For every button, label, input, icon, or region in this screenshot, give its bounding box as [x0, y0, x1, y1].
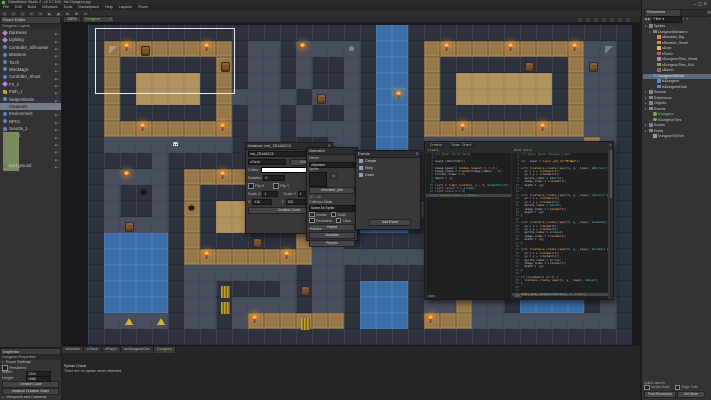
asset-label: sMonster_Big: [662, 35, 684, 39]
menu-help[interactable]: Help: [105, 5, 113, 9]
map-tile: [584, 73, 600, 89]
menu-layouts[interactable]: Layouts: [119, 5, 132, 9]
asset-icon: [653, 74, 657, 78]
object-ref-field[interactable]: oTorch: [248, 159, 286, 166]
map-tile: [136, 265, 152, 281]
map-tile: [280, 105, 296, 121]
torch-sprite: [301, 46, 304, 51]
layer-row-shadows[interactable]: Shadows◉ ▪: [0, 132, 61, 139]
map-tile: [248, 121, 264, 137]
map-tile: [216, 153, 232, 169]
map-tile: [280, 281, 296, 297]
y-field[interactable]: 320: [286, 199, 306, 206]
folder-icon: [649, 129, 653, 133]
code-pane-roomstart[interactable]: Room Start 1/// @desc Spawn dungeon prop…: [511, 148, 608, 299]
rotation-field[interactable]: 0: [263, 175, 285, 182]
map-tile: [88, 265, 104, 281]
barrel-sprite: [125, 222, 134, 232]
map-tile: [360, 25, 376, 41]
layer-list: Darkness◉ ▪Lighting◉ ▪Controller_Silhoue…: [0, 29, 61, 169]
map-tile: [152, 233, 168, 249]
map-tile: [376, 105, 392, 121]
map-tile: [584, 329, 600, 345]
folder-icon: [649, 96, 653, 100]
map-tile: [392, 297, 408, 313]
map-tile: [392, 281, 408, 297]
layer-label: Creatures: [9, 104, 27, 109]
creation-code-button[interactable]: Creation Code: [2, 381, 59, 387]
map-tile: [200, 217, 216, 233]
map-tile: [248, 57, 264, 73]
map-tile: [120, 297, 136, 313]
find-resources-button[interactable]: Find Resources: [644, 391, 676, 398]
add-event-button[interactable]: Add Event: [369, 219, 411, 226]
inst-layer-icon: [3, 112, 7, 116]
get-more-button[interactable]: Get More: [677, 391, 705, 398]
folder-icon: [649, 90, 653, 94]
map-tile: [616, 217, 632, 233]
map-tile: [280, 89, 296, 105]
map-tile: [584, 121, 600, 137]
map-tile: [616, 169, 632, 185]
map-tile: [504, 57, 520, 73]
visibility-lock-icons[interactable]: ◉ ▪: [54, 164, 59, 171]
map-tile: [440, 73, 456, 89]
map-tile: [296, 73, 312, 89]
map-tile: [408, 297, 424, 313]
map-tile: [88, 201, 104, 217]
map-tile: [408, 233, 424, 249]
map-tile: [296, 25, 312, 41]
barrel-sprite: [317, 94, 326, 104]
map-tile: [408, 265, 424, 281]
object-editor-window: oMonster Name: oMonster Sprite: ✎ sMonst…: [306, 147, 358, 241]
menu-tools[interactable]: Tools: [64, 5, 73, 9]
event-row-create[interactable]: Create: [356, 158, 420, 165]
map-tile: [168, 169, 184, 185]
editor-tab-oplayer[interactable]: oPlayer: [102, 347, 121, 353]
flip-x-checkbox[interactable]: [248, 183, 254, 189]
layer-label: Environment: [9, 111, 33, 116]
menu-marketplace[interactable]: Marketplace: [78, 5, 99, 9]
event-row-step[interactable]: Step: [356, 165, 420, 172]
code-lines-roomstart[interactable]: 1/// @desc Spawn dungeon props2 3var _la…: [512, 153, 608, 296]
map-tile: [616, 89, 632, 105]
map-tile: [408, 313, 424, 329]
menu-build[interactable]: Build: [28, 5, 36, 9]
map-tile: [360, 89, 376, 105]
map-tile: [152, 153, 168, 169]
map-tile: [280, 41, 296, 57]
map-tile: [360, 41, 376, 57]
map-tile: [488, 105, 504, 121]
map-tile: [296, 121, 312, 137]
map-tile: [488, 89, 504, 105]
map-tile: [152, 201, 168, 217]
map-tile: [520, 121, 536, 137]
map-tile: [280, 233, 296, 249]
map-tile: [168, 185, 184, 201]
map-tile: [424, 73, 440, 89]
map-tile: [616, 73, 632, 89]
menu-file[interactable]: File: [3, 5, 9, 9]
asset-icon: [653, 112, 657, 116]
map-tile: [408, 329, 424, 345]
window-controls[interactable]: –▢✕: [694, 1, 709, 6]
map-tile: [328, 297, 344, 313]
fx-layer-icon: [2, 37, 8, 43]
map-tile: [328, 329, 344, 345]
editor-tab-scrdungeongen[interactable]: scrDungeonGen: [121, 347, 154, 353]
events-window-titlebar[interactable]: Events ✕: [356, 151, 420, 158]
map-tile: [264, 249, 280, 265]
map-tile: [440, 329, 456, 345]
barrel-sprite: [253, 238, 262, 248]
map-tile: [200, 121, 216, 137]
inst-layer-icon: [3, 53, 7, 57]
instance-creation-order-button[interactable]: Instance Creation Order: [2, 388, 59, 394]
menu-windows[interactable]: Windows: [42, 5, 57, 9]
map-tile: [168, 329, 184, 345]
layer-label: Path_1: [9, 89, 22, 94]
map-tile: [216, 185, 232, 201]
layer-row-lighting[interactable]: Lighting◉ ▪: [0, 36, 61, 43]
viewports-section[interactable]: ▸Viewports and Cameras: [0, 395, 61, 400]
map-tile: [504, 329, 520, 345]
inspector-tab[interactable]: Inspector: [0, 348, 61, 355]
selection-rectangle[interactable]: [95, 28, 235, 94]
asset-dungeontileset[interactable]: DungeonTileSet: [643, 134, 711, 140]
map-tile: [216, 137, 232, 153]
event-row-draw[interactable]: Draw: [356, 172, 420, 179]
physics-button[interactable]: Physics: [309, 240, 355, 247]
map-tile: [616, 153, 632, 169]
map-tile: [456, 89, 472, 105]
map-tile: [440, 313, 456, 329]
map-tile: [616, 185, 632, 201]
map-tile: [312, 73, 328, 89]
editor-tab-otorch[interactable]: oTorch: [84, 347, 102, 353]
sprite-select-button[interactable]: sMonster_Idle: [309, 187, 355, 194]
map-tile: [200, 313, 216, 329]
map-tile: [88, 313, 104, 329]
asset-icon: [653, 118, 657, 122]
map-tile: [200, 297, 216, 313]
asset-icon: [657, 46, 661, 50]
map-tile: [392, 121, 408, 137]
map-tile: [328, 89, 344, 105]
map-tile: [344, 105, 360, 121]
map-tile: [536, 73, 552, 89]
map-tile: [424, 41, 440, 57]
map-tile: [568, 73, 584, 89]
code-line[interactable]: 13// shadow_caster = false;: [426, 194, 512, 197]
map-tile: [568, 89, 584, 105]
map-tile: [472, 25, 488, 41]
map-tile: [200, 233, 216, 249]
map-tile: [264, 329, 280, 345]
inst-layer-icon: [3, 60, 7, 64]
map-tile: [248, 329, 264, 345]
map-tile: [536, 25, 552, 41]
filter-dropdown[interactable]: Filter ▾: [652, 16, 682, 23]
map-tile: [504, 121, 520, 137]
layer-row-creatures[interactable]: Creatures◉ ▪: [0, 103, 61, 110]
map-tile: [248, 265, 264, 281]
editor-tab-omonster[interactable]: oMonster: [62, 347, 84, 353]
map-tile: [536, 57, 552, 73]
layer-row-controller_silhouette[interactable]: Controller_Silhouette◉ ▪: [0, 44, 61, 51]
map-tile: [552, 329, 568, 345]
map-tile: [536, 105, 552, 121]
map-tile: [88, 329, 104, 345]
map-tile: [248, 249, 264, 265]
layer-row-path_1[interactable]: Path_1◉ ▪: [0, 88, 61, 95]
map-tile: [296, 265, 312, 281]
map-tile: [584, 89, 600, 105]
map-tile: [344, 281, 360, 297]
map-tile: [456, 329, 472, 345]
map-tile: [328, 25, 344, 41]
map-tile: [488, 121, 504, 137]
map-tile: [232, 329, 248, 345]
layer-row-fx_2[interactable]: FX_2◉ ▪: [0, 81, 61, 88]
asset-label: DungeonTileSet: [658, 134, 684, 138]
close-icon[interactable]: ✕: [704, 1, 709, 6]
map-tile: [552, 89, 568, 105]
layer-row-background[interactable]: Background◉ ▪: [0, 162, 61, 169]
map-tile: [376, 249, 392, 265]
map-tile: [216, 329, 232, 345]
map-tile: [280, 265, 296, 281]
map-tile: [296, 89, 312, 105]
layer-row-monsters[interactable]: Monsters◉ ▪: [0, 51, 61, 58]
gate-sprite: [301, 318, 310, 330]
map-tile: [536, 89, 552, 105]
map-tile: [520, 41, 536, 57]
layer-row-darkness[interactable]: Darkness◉ ▪: [0, 29, 61, 36]
layer-label: NPCs: [9, 119, 20, 124]
asset-label: sMonster_Small: [662, 41, 688, 45]
map-tile: [472, 41, 488, 57]
map-tile: [568, 57, 584, 73]
code-lines-create[interactable]: 1/// @desc Torch setup2 3event_inherited…: [426, 153, 512, 197]
map-tile: [232, 249, 248, 265]
map-tile: [184, 329, 200, 345]
room-tab-label: Dungeon: [85, 17, 100, 21]
map-tile: [280, 73, 296, 89]
map-tile: [104, 297, 120, 313]
asset-label: rDungeon: [658, 112, 674, 116]
map-tile: [168, 153, 184, 169]
room-editor-tab[interactable]: Room Editor: [0, 16, 61, 24]
layer-row-environment[interactable]: Environment◉ ▪: [0, 110, 61, 117]
forward-icon[interactable]: ▶: [648, 17, 651, 21]
map-tile: [232, 233, 248, 249]
map-tile: [424, 25, 440, 41]
map-tile: [440, 89, 456, 105]
edit-sprite-icon[interactable]: ✎: [330, 173, 337, 179]
map-tile: [184, 249, 200, 265]
map-tile: [456, 313, 472, 329]
map-tile: [408, 121, 424, 137]
layer-label: Lighting: [9, 37, 24, 42]
media-mode-checkbox[interactable]: Media Mode: [644, 385, 670, 389]
asset-label: DungeonTileSet: [658, 74, 684, 78]
search-icon[interactable]: ⌕: [683, 17, 685, 21]
map-tile: [504, 313, 520, 329]
map-tile: [168, 121, 184, 137]
map-tile: [264, 313, 280, 329]
asset-footer: Quick Launch Media Mode Edge Train Find …: [644, 381, 710, 399]
code-scrollbar[interactable]: [610, 148, 613, 299]
map-tile: [248, 89, 264, 105]
map-tile: [168, 217, 184, 233]
layer-row-miscmagic[interactable]: MiscMagic◉ ▪: [0, 66, 61, 73]
asset-icon: [657, 52, 661, 56]
map-tile: [472, 313, 488, 329]
map-tile: [312, 297, 328, 313]
layer-row-controller_shoot[interactable]: Controller_Shoot◉ ▪: [0, 73, 61, 80]
map-tile: [552, 41, 568, 57]
close-icon[interactable]: ✕: [415, 151, 418, 157]
map-tile: [344, 265, 360, 281]
map-tile: [248, 41, 264, 57]
map-tile: [408, 281, 424, 297]
room-height-field[interactable]: 1088: [26, 376, 51, 382]
map-tile: [328, 73, 344, 89]
map-tile: [312, 265, 328, 281]
map-tile: [200, 153, 216, 169]
layer-row-swords_1[interactable]: Swords_1◉ ▪: [0, 125, 61, 132]
map-tile: [152, 185, 168, 201]
map-tile: [232, 105, 248, 121]
layer-label: Torch: [9, 60, 19, 65]
map-tile: [200, 265, 216, 281]
back-icon[interactable]: ◀: [644, 17, 647, 21]
map-tile: [312, 25, 328, 41]
map-tile: [424, 121, 440, 137]
map-tile: [488, 41, 504, 57]
asset-icon: [657, 68, 661, 72]
spider-sprite: [189, 206, 194, 210]
map-tile: [88, 281, 104, 297]
folder-icon: [653, 30, 657, 34]
sprite-thumbnail[interactable]: [309, 172, 327, 187]
editor-tab-dungeon[interactable]: Dungeon: [154, 347, 176, 353]
code-line[interactable]: 42audio_play_sound(snAmbience, 1, true);: [512, 293, 608, 296]
add-asset-icon[interactable]: ＋: [686, 17, 690, 21]
map-tile: [584, 25, 600, 41]
x-field[interactable]: 416: [252, 199, 272, 206]
map-tile: [536, 41, 552, 57]
map-tile: [488, 57, 504, 73]
map-tile: [376, 265, 392, 281]
map-tile: [136, 297, 152, 313]
flip-y-checkbox[interactable]: [273, 183, 279, 189]
torch-sprite: [125, 174, 128, 179]
map-tile: [520, 73, 536, 89]
asset-label: sTorch: [662, 52, 673, 56]
variables-button[interactable]: Variables: [309, 232, 355, 239]
torch-sprite: [205, 254, 208, 259]
folder-icon: [649, 101, 653, 105]
map-tile: [136, 217, 152, 233]
map-tile: [472, 105, 488, 121]
map-tile: [552, 313, 568, 329]
object-window-titlebar[interactable]: oMonster: [307, 148, 357, 155]
map-tile: [184, 313, 200, 329]
map-tile: [472, 121, 488, 137]
map-tile: [88, 233, 104, 249]
map-tile: [312, 313, 328, 329]
asset-label: DungeonMonsters: [658, 30, 687, 34]
layer-row-water[interactable]: Water◉ ▪: [0, 155, 61, 162]
map-tile: [344, 57, 360, 73]
map-tile: [216, 265, 232, 281]
map-tile: [184, 265, 200, 281]
map-tile: [360, 73, 376, 89]
map-tile: [200, 137, 216, 153]
map-tile: [184, 281, 200, 297]
layer-row-npcs[interactable]: NPCs◉ ▪: [0, 118, 61, 125]
edge-train-checkbox[interactable]: Edge Train: [675, 385, 698, 389]
map-tile: [488, 313, 504, 329]
inst-layer-icon: [3, 97, 7, 101]
menu-room[interactable]: Room: [138, 5, 148, 9]
map-tile: [376, 233, 392, 249]
map-tile: [504, 89, 520, 105]
map-tile: [168, 297, 184, 313]
syntax-status-message: There are no syntax errors detected.: [62, 369, 640, 374]
map-tile: [184, 297, 200, 313]
map-tile: [280, 297, 296, 313]
map-tile: [600, 57, 616, 73]
map-tile: [104, 105, 120, 121]
map-tile: [568, 313, 584, 329]
map-tile: [328, 313, 344, 329]
map-tile: [152, 297, 168, 313]
map-tile: [200, 281, 216, 297]
persistent-checkbox[interactable]: Persistent: [309, 219, 332, 223]
fx-layer-icon: [2, 30, 8, 36]
layer-row-torch[interactable]: Torch◉ ▪: [0, 59, 61, 66]
map-tile: [168, 313, 184, 329]
map-tile: [104, 265, 120, 281]
asset-icon: [657, 57, 661, 61]
menu-edit[interactable]: Edit: [15, 5, 22, 9]
map-tile: [344, 297, 360, 313]
map-tile: [248, 73, 264, 89]
map-tile: [616, 57, 632, 73]
asset-icon: [657, 35, 661, 39]
map-tile: [472, 89, 488, 105]
map-tile: [328, 281, 344, 297]
inst-layer-icon: [3, 75, 7, 79]
map-tile: [280, 121, 296, 137]
map-tile: [520, 313, 536, 329]
inst-layer-icon: [3, 45, 7, 49]
scale-x-field[interactable]: 1: [262, 191, 278, 198]
code-pane-create[interactable]: Create 1/// @desc Torch setup2 3event_in…: [425, 148, 512, 299]
layer-row-walls[interactable]: Walls◉ ▪: [0, 140, 61, 147]
layer-row-ground[interactable]: Ground◉ ▪: [0, 147, 61, 154]
map-tile: [376, 73, 392, 89]
map-tile: [536, 329, 552, 345]
map-tile: [520, 89, 536, 105]
map-tile: [456, 57, 472, 73]
layer-row-swipeattacks[interactable]: SwipeAttacks◉ ▪: [0, 96, 61, 103]
